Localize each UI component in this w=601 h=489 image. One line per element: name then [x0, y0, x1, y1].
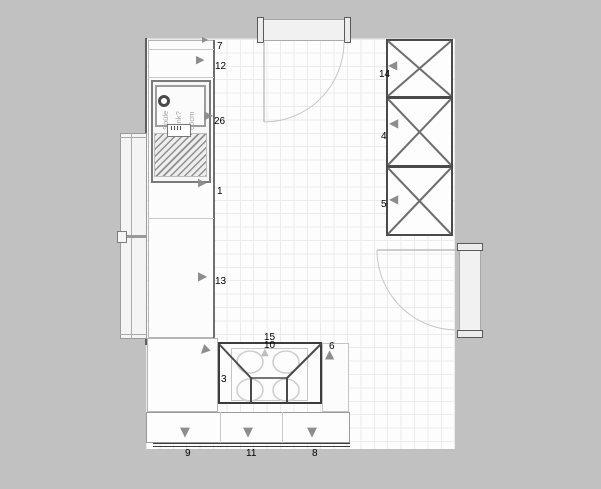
open-direction-arrow-12: ▶ — [196, 54, 204, 65]
left-window-mullion-tab — [117, 231, 127, 243]
item-number-label-13: 13 — [215, 277, 226, 287]
top-door-post-left — [257, 17, 264, 43]
item-number-label-9: 9 — [185, 449, 191, 459]
left-window-top-cap — [120, 137, 147, 138]
open-direction-arrow-1: ▶ — [198, 177, 206, 188]
open-direction-arrow-26: ▶ — [204, 109, 213, 121]
open-direction-arrow-4: ◀ — [389, 117, 398, 129]
item-number-label-5: 5 — [381, 200, 387, 210]
item-number-label-7: 7 — [217, 42, 223, 52]
item-number-label-10: 10 — [264, 341, 275, 351]
open-direction-arrow-8: ▼ — [307, 426, 317, 439]
sink-control-panel — [167, 124, 191, 137]
item-number-label-26: 26 — [214, 117, 225, 127]
item-number-label-14: 14 — [379, 70, 390, 80]
item-number-label-8: 8 — [312, 449, 318, 459]
worktop-edge-line — [153, 446, 350, 447]
item-number-label-1: 1 — [217, 187, 223, 197]
open-direction-arrow-7: ▶ — [202, 36, 208, 44]
right-door-panel[interactable] — [459, 250, 481, 331]
right-door-post-top — [457, 243, 483, 251]
cabinet-divider — [148, 77, 214, 78]
left-window-bottom-cap — [120, 334, 147, 335]
top-door-post-right — [344, 17, 351, 43]
base-row-divider — [220, 412, 221, 443]
open-direction-arrow-9: ▼ — [180, 426, 190, 439]
plan-canvas: Spüle Sink? 60cm — [0, 0, 601, 489]
tall-cabinet-4[interactable] — [386, 97, 453, 167]
worktop-edge-line — [153, 443, 350, 444]
left-cabinet-front-edge — [213, 40, 215, 338]
item-number-label-4: 4 — [381, 132, 387, 142]
open-direction-arrow-11: ▼ — [243, 426, 253, 439]
item-number-label-3: 3 — [221, 375, 227, 385]
open-direction-arrow-13: ▶ — [198, 270, 207, 282]
item-number-label-6: 6 — [329, 342, 335, 352]
item-number-label-12: 12 — [215, 62, 226, 72]
faucet-icon — [158, 95, 170, 107]
sink-panel-ticks-icon — [171, 126, 181, 130]
sink-drainer-hatch — [154, 133, 207, 177]
cabinet-divider — [148, 49, 214, 50]
open-direction-arrow-5: ◀ — [389, 193, 398, 205]
top-door-panel[interactable] — [263, 19, 345, 41]
right-door-post-bottom — [457, 330, 483, 338]
item-number-label-11: 11 — [246, 449, 256, 459]
hob-surface — [231, 348, 308, 401]
base-row-divider — [282, 412, 283, 443]
cabinet-divider — [148, 218, 214, 219]
